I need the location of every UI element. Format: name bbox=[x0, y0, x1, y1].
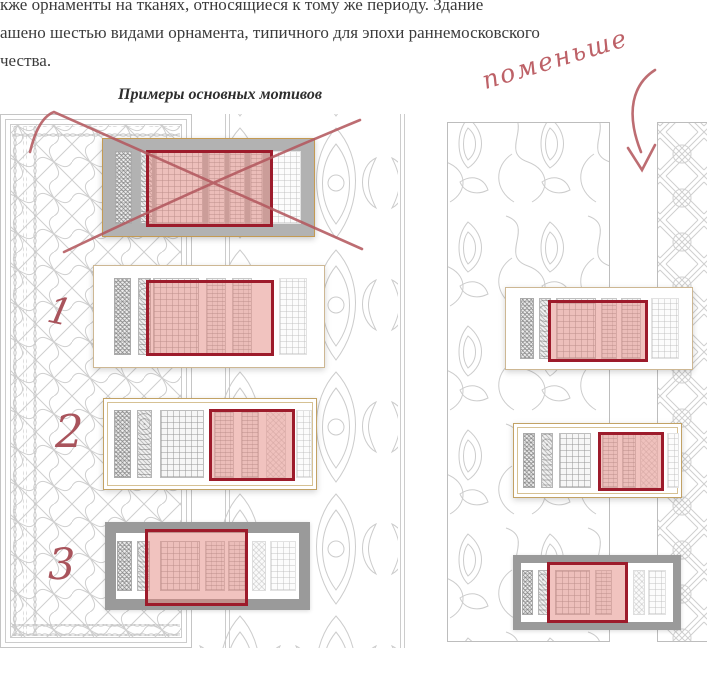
ornament-strip-ltlat bbox=[279, 278, 307, 355]
ornament-strip-ltlat bbox=[270, 541, 296, 591]
red-highlight-rectangle bbox=[547, 562, 628, 623]
ornament-strip-dark bbox=[520, 298, 534, 360]
ornament-strip-dark bbox=[117, 541, 132, 591]
ornament-strip-dark bbox=[523, 433, 535, 488]
red-highlight-rectangle bbox=[209, 409, 295, 481]
ornament-card-crossed-out bbox=[102, 138, 315, 237]
red-highlight-rectangle bbox=[598, 432, 664, 491]
ornament-strip-lt bbox=[633, 570, 645, 615]
handwritten-number-2: 2 bbox=[55, 405, 84, 458]
ornament-strip-ltlat bbox=[296, 410, 312, 478]
ornament-strip-dark bbox=[115, 151, 132, 225]
ornament-card-2 bbox=[103, 398, 317, 490]
ornament-strip-ltlat bbox=[651, 298, 679, 360]
ornament-strip-ltlat bbox=[271, 151, 301, 225]
ornament-strip-ltlat bbox=[667, 433, 679, 488]
red-highlight-rectangle bbox=[146, 280, 274, 356]
red-highlight-rectangle bbox=[548, 300, 648, 362]
ornament-strip-dark bbox=[522, 570, 533, 615]
ornament-card-3 bbox=[105, 522, 310, 610]
ornament-card-right-2 bbox=[513, 423, 682, 498]
ornament-card-1 bbox=[93, 265, 325, 368]
handwritten-number-3: 3 bbox=[48, 540, 75, 590]
ornament-strip-med bbox=[137, 410, 152, 478]
ornament-card-right-3 bbox=[513, 555, 681, 630]
ornament-strip-dark bbox=[114, 410, 131, 478]
red-highlight-rectangle bbox=[145, 529, 248, 606]
ornament-strip-dark bbox=[114, 278, 131, 355]
ornament-strip-lt bbox=[252, 541, 266, 591]
ornament-strip-lat bbox=[559, 433, 591, 488]
red-highlight-rectangle bbox=[146, 150, 273, 227]
ornament-strip-ltlat bbox=[648, 570, 666, 615]
ornament-strip-lat bbox=[160, 410, 204, 478]
ornament-strip-med bbox=[541, 433, 553, 488]
ornament-card-right-1 bbox=[505, 287, 693, 370]
